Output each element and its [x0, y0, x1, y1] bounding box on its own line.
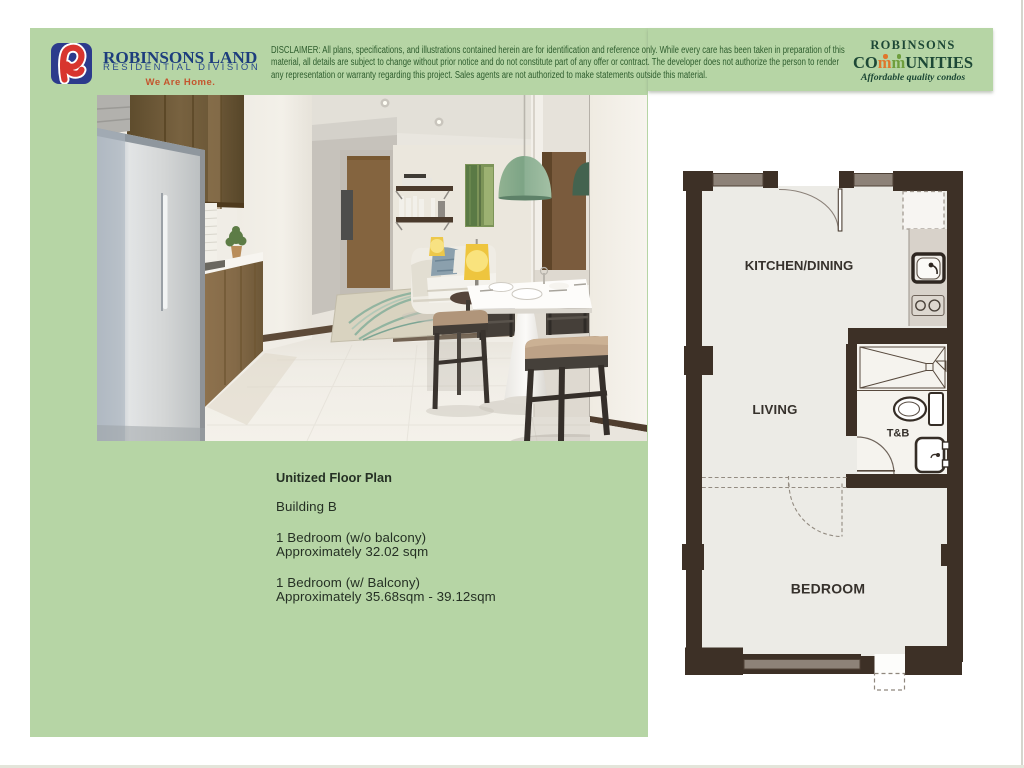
svg-text:KITCHEN/DINING: KITCHEN/DINING [745, 258, 853, 273]
svg-text:LIVING: LIVING [752, 402, 797, 417]
svg-text:T&B: T&B [887, 428, 910, 440]
svg-text:BEDROOM: BEDROOM [791, 581, 866, 597]
